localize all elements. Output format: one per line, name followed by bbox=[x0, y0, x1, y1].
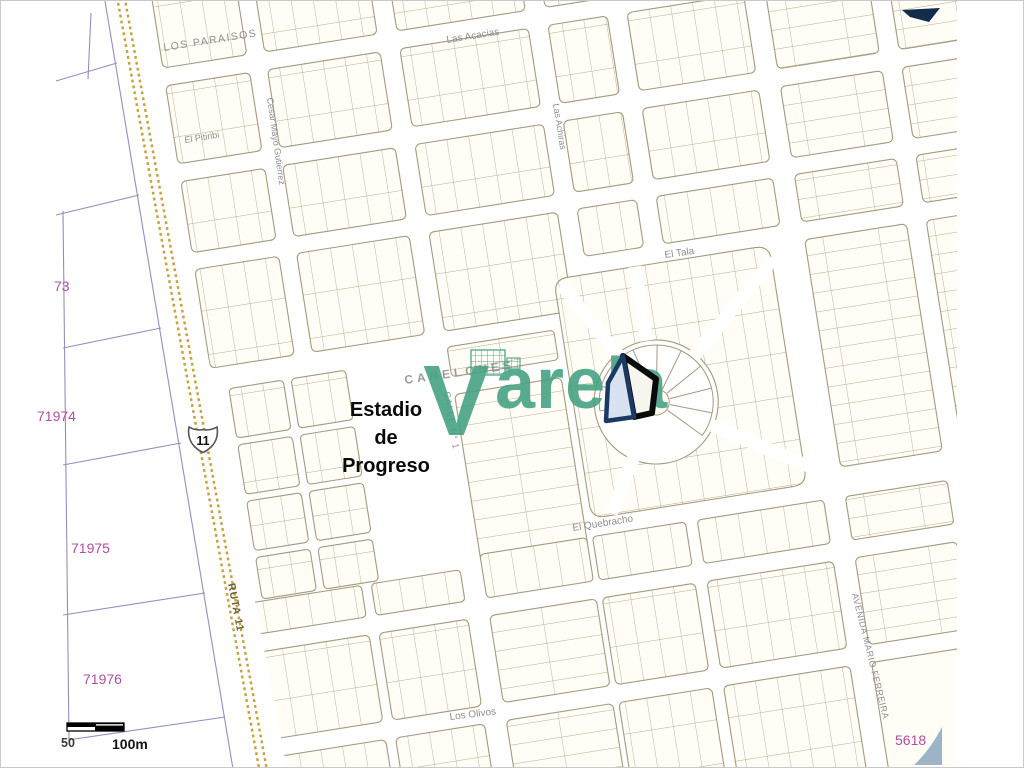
scale-label-100m: 100m bbox=[112, 736, 148, 752]
parcel-number-71975: 71975 bbox=[71, 540, 110, 556]
map-canvas: 11 RUTA 11 LOS PARAISOS Las Acacias El P… bbox=[1, 1, 1023, 767]
parcel-number-73: 73 bbox=[54, 278, 70, 294]
street-label-las-achiras: Las Achiras bbox=[551, 103, 568, 151]
map-right-margin bbox=[957, 1, 1023, 767]
parcel-number-71976: 71976 bbox=[83, 671, 122, 687]
poi-line-1: Estadio bbox=[350, 399, 422, 421]
parcel-number-71974: 71974 bbox=[37, 408, 76, 424]
cadastral-map-image[interactable]: 11 RUTA 11 LOS PARAISOS Las Acacias El P… bbox=[0, 0, 1024, 768]
poi-line-3: Progreso bbox=[342, 455, 430, 477]
scale-bar: 50 100m bbox=[61, 723, 148, 752]
route-shield-number: 11 bbox=[196, 434, 209, 448]
logo-letter-v: V bbox=[423, 345, 490, 457]
parcel-number-5618: 5618 bbox=[895, 732, 926, 748]
scale-label-50: 50 bbox=[61, 736, 75, 750]
poi-line-2: de bbox=[374, 427, 397, 449]
